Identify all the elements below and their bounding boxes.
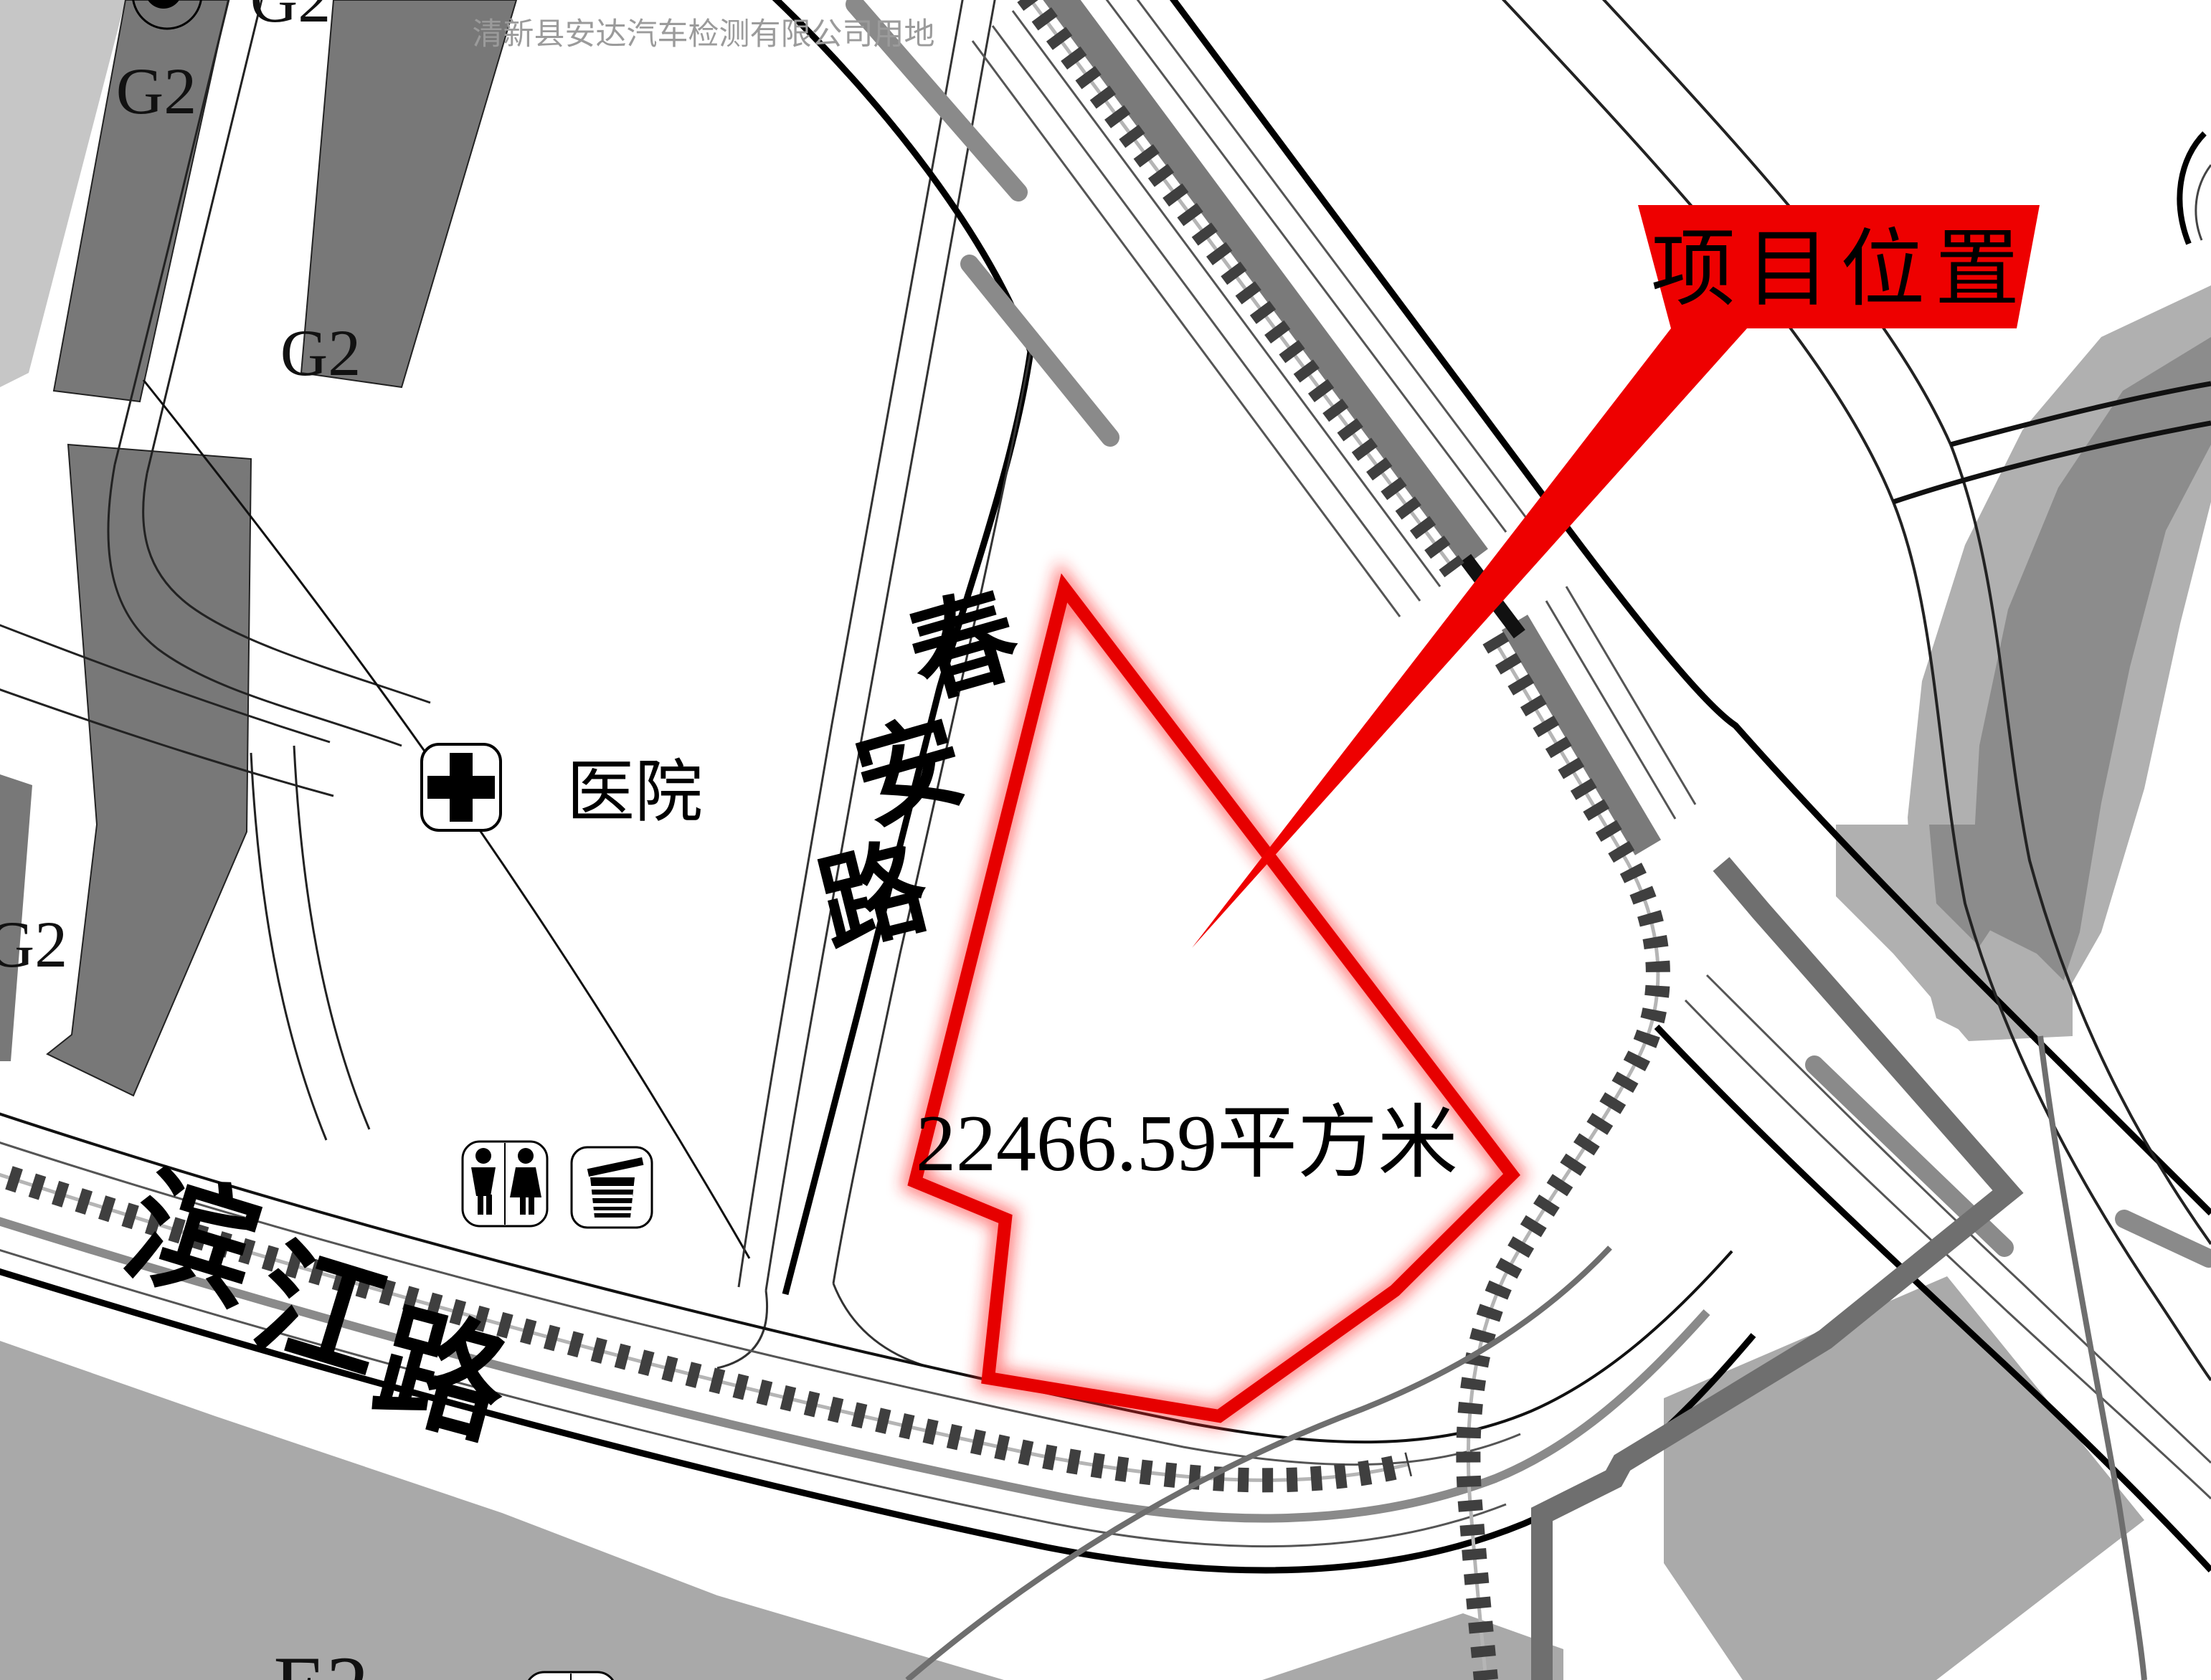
bigroad-lane-line: [972, 41, 1400, 617]
river-bottom-patch: [1262, 1613, 1563, 1680]
junction-flare: [717, 1291, 767, 1368]
corner-road-end: [2179, 133, 2205, 244]
railway-rail-underlay: [1027, 0, 1658, 1680]
site-boundary-glow: [915, 588, 1512, 1416]
planning-map: 项目位置 清新县安达汽车检测有限公司用地 G2 G2 G2 G2 E2 医院 2…: [0, 0, 2211, 1680]
zone-label-g2-top-cut: G2: [250, 0, 331, 36]
restroom-icon: [463, 1142, 547, 1226]
green-buffer-band-a2: [47, 445, 251, 1096]
zone-label-e2-cut: E2: [273, 1638, 369, 1680]
bigroad-lane-line: [993, 26, 1420, 601]
map-title: 清新县安达汽车检测有限公司用地: [473, 18, 935, 52]
hospital-label: 医院: [567, 754, 703, 830]
median-capsule: [970, 264, 1110, 437]
road-edge: [251, 753, 326, 1140]
zone-label-g2: G2: [116, 54, 197, 128]
chunan-char-3: 路: [808, 827, 939, 967]
stream-curve: [907, 1248, 1610, 1680]
chunan-char-1: 春: [896, 575, 1031, 718]
map-canvas: 项目位置 清新县安达汽车检测有限公司用地 G2 G2 G2 G2 E2 医院 2…: [0, 0, 2211, 1680]
median-band-segment: [1048, 0, 1476, 558]
road-edge: [294, 746, 369, 1129]
hospital-icon: [422, 744, 501, 830]
railway-hatch-main: [1027, 0, 1658, 1680]
site-overlay: [915, 588, 1512, 1416]
chunan-char-2: 安: [843, 701, 977, 843]
corner-road-end-inner: [2196, 165, 2211, 240]
zone-label-g2-mid: G2: [280, 316, 361, 389]
restroom-icon-bottom-cut: [526, 1672, 616, 1680]
bigroad-lane-line: [1013, 11, 1440, 587]
site-area-label: 22466.59平方米: [916, 1099, 1458, 1188]
callout-label: 项目位置: [1651, 223, 2030, 317]
trash-bin-icon: [572, 1147, 652, 1228]
median-band-segment: [1515, 622, 1648, 848]
zone-label-g2-left-cut: G2: [0, 908, 67, 981]
shoal-parcel-se: [1664, 1276, 2144, 1680]
chunan-road-label: 春 安 路: [808, 575, 1031, 967]
junction-flare: [833, 1283, 925, 1366]
